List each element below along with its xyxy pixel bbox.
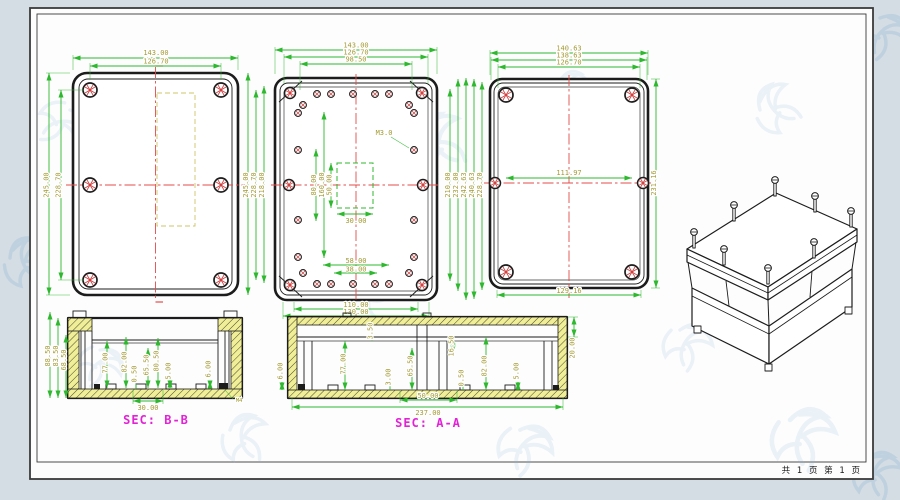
dim-label: 111.97 (556, 169, 581, 177)
dim-label: 0.50 (458, 370, 466, 387)
dim-label: 77.00 (102, 352, 110, 373)
dim-label: 30.00 (137, 404, 158, 412)
dim-label: 77.00 (340, 353, 348, 374)
dim-label: 231.16 (650, 170, 658, 195)
insert-callout-label: M4 (236, 398, 243, 404)
dim-label: 126.70 (143, 58, 168, 66)
dim-label: 240.63 (468, 172, 476, 197)
dim-label: 245.00 (43, 172, 51, 197)
dim-label: 80.00 (310, 174, 318, 195)
section-aa-title: SEC: A-A (395, 416, 461, 430)
cad-drawing-canvas: 143.00 126.70 245.00 228.70 245.00 228.7… (0, 0, 900, 500)
dim-label: 88.50 (44, 345, 52, 366)
thread-callout-label: M3.0 (376, 129, 393, 137)
dim-label: 50.00 (326, 174, 334, 195)
dim-label: 228.70 (55, 172, 63, 197)
dim-label: 0.50 (131, 366, 139, 383)
dim-label: 82.00 (121, 351, 129, 372)
dim-label: 65.50 (407, 355, 415, 376)
dim-label: 65.50 (143, 354, 151, 375)
dim-label: 5.00 (513, 363, 521, 380)
dim-label: 82.00 (481, 355, 489, 376)
dim-label: 6.00 (277, 363, 285, 380)
dim-label: 16.50 (448, 335, 456, 356)
dim-label: 50.00 (417, 392, 438, 400)
dim-label: 3.50 (367, 323, 375, 340)
dim-label: 130.00 (343, 308, 368, 316)
dim-label: 242.63 (460, 172, 468, 197)
dim-label: 30.00 (345, 217, 366, 225)
dim-label: 218.00 (258, 172, 266, 197)
page-footer-text: 共 1 页 第 1 页 (782, 465, 862, 476)
dim-label: 6.00 (205, 361, 213, 378)
dim-label: 38.00 (345, 266, 366, 274)
dim-label: 126.70 (556, 59, 581, 67)
dim-label: 80.50 (153, 350, 161, 371)
dim-label: 5.00 (165, 363, 173, 380)
dim-label: 98.50 (345, 56, 366, 64)
dim-label: 245.00 (242, 172, 250, 197)
view-lid-outside: 143.00 126.70 245.00 228.70 (43, 49, 246, 302)
dim-label: 143.00 (143, 49, 168, 57)
view-cover: 111.97 140.63 138.63 126.70 231.16 129.1… (484, 45, 660, 299)
dim-label: 129.16 (556, 287, 581, 295)
dim-label: 210.00 (444, 172, 452, 197)
dim-label: 83.50 (52, 345, 60, 366)
dim-label: 3.00 (385, 369, 393, 386)
dim-label: 232.00 (452, 172, 460, 197)
section-bb-title: SEC: B-B (123, 413, 189, 427)
dim-label: 58.00 (345, 257, 366, 265)
dim-label: 228.70 (250, 172, 258, 197)
drawing-page: 143.00 126.70 245.00 228.70 245.00 228.7… (0, 0, 900, 500)
dim-label: 20.00 (569, 337, 577, 358)
dim-label: 228.70 (476, 172, 484, 197)
dim-label: 68.50 (60, 349, 68, 370)
